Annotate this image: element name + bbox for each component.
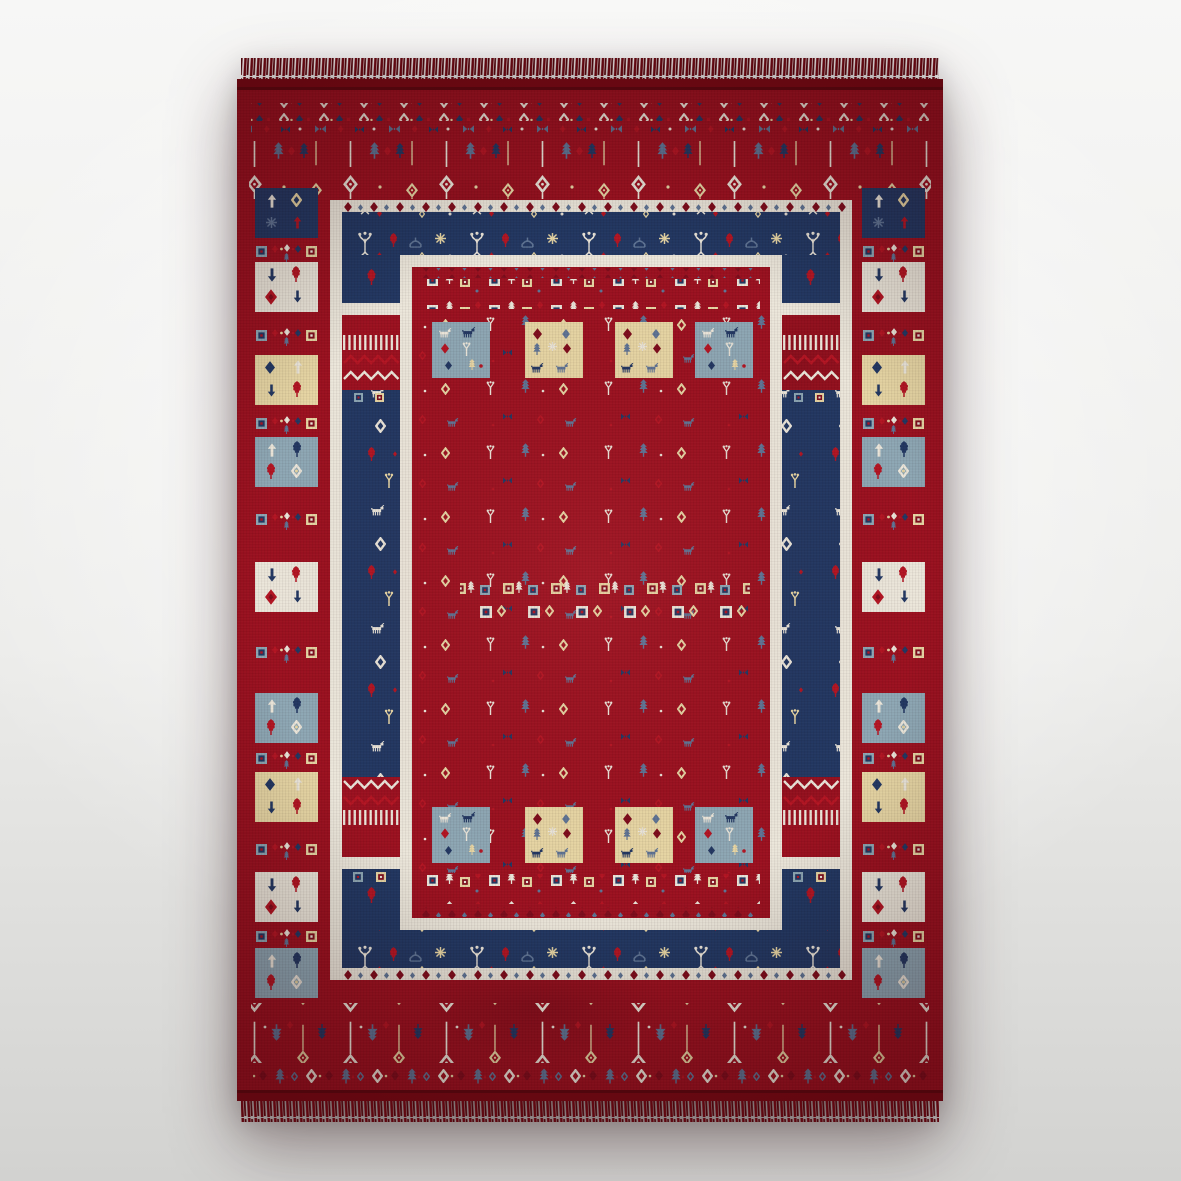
photo-background — [0, 0, 1181, 1181]
weave-texture — [237, 79, 943, 1101]
rug-artwork — [237, 57, 943, 1123]
rug — [237, 57, 943, 1123]
